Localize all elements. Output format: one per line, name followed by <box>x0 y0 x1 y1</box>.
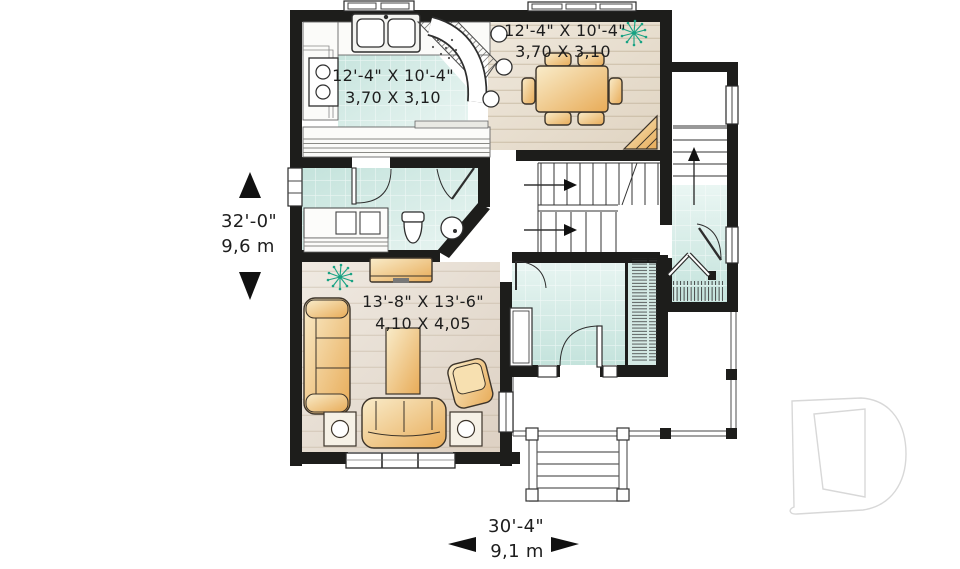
side-table <box>450 412 482 446</box>
rear-foyer-window <box>726 227 738 263</box>
overall-width-imperial: 30'-4" <box>441 517 591 538</box>
overall-depth-imperial: 32'-0" <box>199 212 299 233</box>
porch-posts <box>526 369 737 501</box>
corner-sink <box>441 217 463 239</box>
bar-stool <box>496 59 512 75</box>
closet-shelving <box>632 258 657 362</box>
kitchen-dimension-imperial: 12'-4" X 10'-4" <box>303 67 483 85</box>
living-bottom-window <box>346 453 455 468</box>
kitchen-dimension-metric: 3,70 X 3,10 <box>303 89 483 107</box>
living-side-window <box>499 392 513 432</box>
dining-chair <box>609 78 622 104</box>
door-mat <box>673 281 723 301</box>
down-arrow-icon <box>239 272 261 300</box>
living-dimension-imperial: 13'-8" X 13'-6" <box>333 293 513 311</box>
tv-console <box>370 258 432 283</box>
entry-sidelight-left <box>538 366 557 377</box>
main-staircase <box>524 163 660 252</box>
porch-steps <box>529 440 627 501</box>
entry-sidelight-right <box>603 366 617 377</box>
laundry-counter <box>304 208 388 252</box>
rear-landing-window <box>726 86 738 124</box>
stairs-up-arrow-icon <box>524 224 577 236</box>
side-table <box>324 412 356 446</box>
up-arrow-icon <box>239 172 261 198</box>
bar-stool <box>483 91 499 107</box>
overall-width-metric: 9,1 m <box>442 542 592 563</box>
entry-bench <box>510 308 532 366</box>
dining-dimension-metric: 3,70 X 3,10 <box>473 43 653 61</box>
dining-window <box>528 2 636 11</box>
lamp <box>458 421 475 438</box>
bathroom-window <box>288 168 302 206</box>
company-logo-watermark <box>790 398 906 514</box>
dining-table <box>536 66 608 112</box>
living-dimension-metric: 4,10 X 4,05 <box>333 315 513 333</box>
lamp <box>332 421 349 438</box>
coffee-table <box>386 328 420 394</box>
floor-plan-canvas: 12'-4" X 10'-4" 3,70 X 3,10 12'-4" X 10'… <box>0 0 960 569</box>
overall-depth-metric: 9,6 m <box>198 237 298 258</box>
dining-chair <box>522 78 535 104</box>
dining-dimension-imperial: 12'-4" X 10'-4" <box>475 22 655 40</box>
kitchen-window <box>344 1 414 11</box>
kitchen-sink <box>352 14 420 52</box>
loveseat <box>362 398 446 448</box>
dining-chair <box>578 112 604 125</box>
dining-chair <box>545 112 571 125</box>
stairs-up-arrow-icon <box>524 179 577 191</box>
